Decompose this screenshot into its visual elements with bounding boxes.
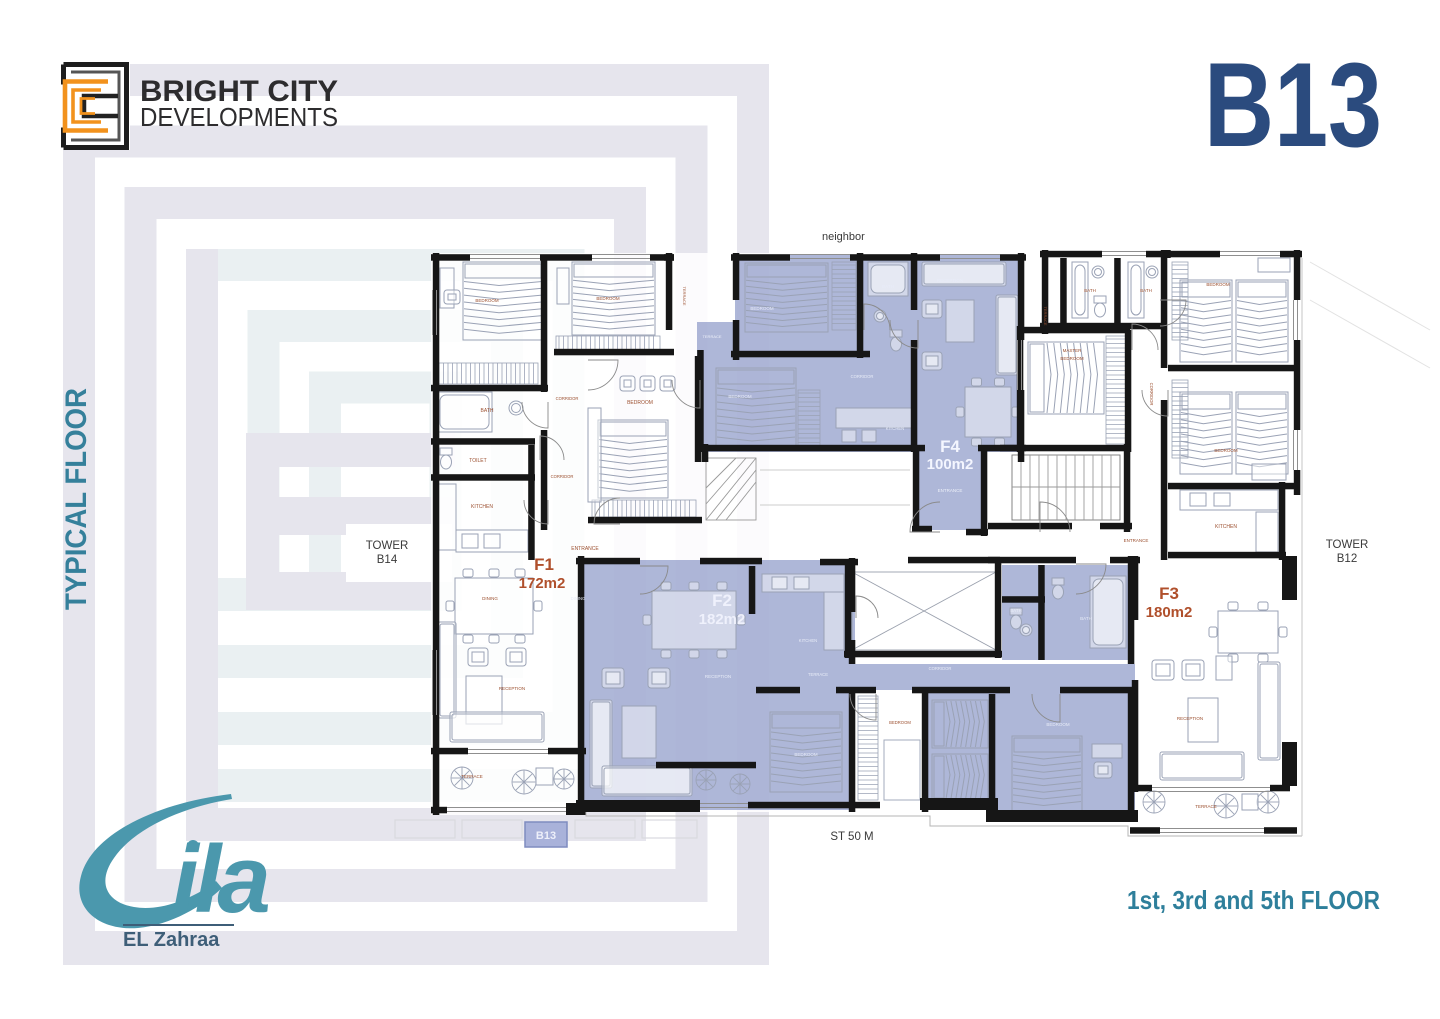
svg-text:BEDROOM: BEDROOM [1214,448,1238,453]
svg-text:TERRACE: TERRACE [1195,804,1217,809]
svg-text:182m2: 182m2 [699,611,746,628]
svg-text:RECEPTION: RECEPTION [705,674,731,679]
svg-text:TERRACE: TERRACE [808,672,828,677]
svg-text:neighbor: neighbor [822,231,865,243]
svg-text:ENTRANCE: ENTRANCE [1124,538,1149,543]
svg-text:B12: B12 [1337,553,1357,565]
svg-text:CORRIDOR: CORRIDOR [1149,383,1154,406]
svg-text:CORRIDOR: CORRIDOR [551,474,574,479]
svg-text:BATH: BATH [882,284,894,289]
svg-text:BEDROOM: BEDROOM [750,306,774,311]
svg-text:TOWER: TOWER [1326,539,1369,551]
svg-text:TOWER: TOWER [366,540,409,552]
svg-text:BEDROOM: BEDROOM [1060,356,1084,361]
svg-text:RECEPTION: RECEPTION [937,278,963,283]
svg-text:BATH: BATH [1010,608,1022,613]
svg-text:180m2: 180m2 [1146,604,1193,621]
svg-text:BEDROOM: BEDROOM [1046,722,1070,727]
svg-text:F3: F3 [1159,584,1179,603]
svg-text:ENTRANCE: ENTRANCE [571,546,599,552]
svg-text:BEDROOM: BEDROOM [889,720,911,725]
svg-text:BATH: BATH [1080,616,1092,621]
svg-text:172m2: 172m2 [519,575,566,592]
svg-text:BATH: BATH [481,408,494,414]
svg-text:ST 50 M: ST 50 M [830,831,873,843]
svg-text:BEDROOM: BEDROOM [794,752,818,757]
svg-text:BEDROOM: BEDROOM [596,296,620,301]
svg-text:BATH: BATH [1084,288,1096,293]
svg-text:CORRIDOR: CORRIDOR [556,396,579,401]
svg-text:F1: F1 [534,555,554,574]
svg-text:B13: B13 [1204,38,1382,172]
svg-text:KITCHEN: KITCHEN [1215,524,1237,530]
svg-text:KITCHEN: KITCHEN [886,426,904,431]
svg-text:TYPICAL FLOOR: TYPICAL FLOOR [60,388,93,610]
svg-text:B13: B13 [536,830,556,842]
svg-text:DEVELOPMENTS: DEVELOPMENTS [140,102,338,132]
svg-text:CORRIDOR: CORRIDOR [851,374,874,379]
svg-text:CORRIDOR: CORRIDOR [929,666,952,671]
svg-text:TERRACE: TERRACE [1043,306,1048,325]
svg-text:BEDROOM: BEDROOM [1206,282,1230,287]
svg-text:RECEPTION: RECEPTION [499,686,525,691]
svg-text:DINING: DINING [571,596,586,601]
svg-text:RECEPTION: RECEPTION [1177,716,1203,721]
svg-text:BEDROOM: BEDROOM [627,400,653,406]
svg-text:TOILET: TOILET [469,458,486,464]
svg-text:1st, 3rd and 5th FLOOR: 1st, 3rd and 5th FLOOR [1127,885,1380,915]
svg-text:KITCHEN: KITCHEN [471,504,493,510]
svg-text:ENTRANCE: ENTRANCE [938,488,963,493]
svg-text:BATH: BATH [1140,288,1152,293]
svg-text:F2: F2 [712,591,732,610]
svg-text:EL Zahraa: EL Zahraa [123,929,220,951]
svg-text:TERRACE: TERRACE [461,774,483,779]
svg-text:BEDROOM: BEDROOM [728,394,752,399]
svg-text:100m2: 100m2 [927,456,974,473]
svg-text:F4: F4 [940,437,960,456]
svg-text:BEDROOM: BEDROOM [475,298,499,303]
svg-text:KITCHEN: KITCHEN [799,638,817,643]
svg-text:ila: ila [172,826,268,933]
svg-text:TERRACE: TERRACE [682,286,687,305]
svg-text:B14: B14 [377,554,398,566]
svg-text:DINING: DINING [482,596,498,601]
svg-text:TERRACE: TERRACE [702,334,721,339]
svg-text:MASTER: MASTER [1063,348,1083,353]
